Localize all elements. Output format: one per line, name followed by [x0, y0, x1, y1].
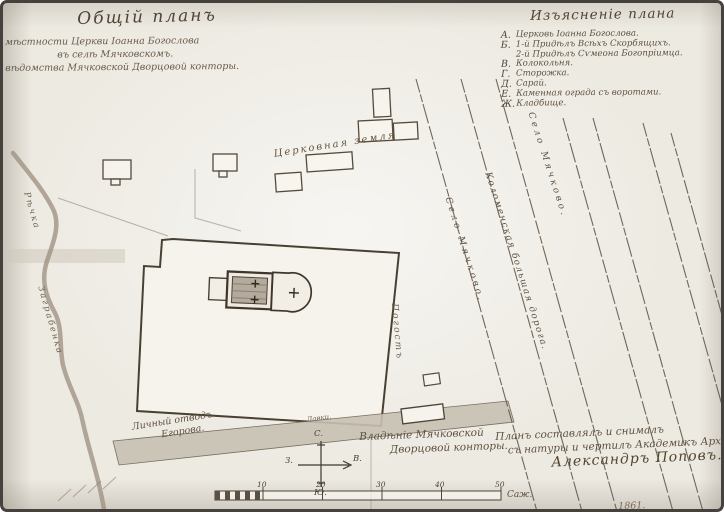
compass-west-label: З. [285, 456, 293, 466]
scale-number: 50 [495, 480, 505, 489]
compass-east-label: В. [353, 454, 362, 464]
building [103, 160, 131, 179]
scale-number: 30 [376, 480, 386, 489]
road-line [643, 123, 724, 423]
scale-number: 40 [435, 480, 445, 489]
subtitle-line-3: вѣдомства Мячковской Дворцовой конторы. [5, 60, 239, 75]
church-porch [209, 278, 228, 301]
attribution-date: 1861. [618, 500, 646, 512]
building [213, 154, 237, 171]
churchyard-outline [137, 239, 399, 426]
scale-number: 20 [316, 480, 326, 489]
legend-title: Изъясненіе плана [530, 5, 676, 24]
building [275, 172, 302, 192]
corner-hatching [58, 477, 116, 501]
building [219, 171, 227, 177]
legend-item: Ж.Кладбище. [501, 98, 683, 109]
ownership-label: Владѣніе Мячковской Дворцовой конторы. [359, 425, 508, 458]
compass-south-label: Ю. [314, 488, 327, 498]
page-title: Общій планъ [77, 5, 217, 29]
shed-building [423, 373, 440, 386]
legend-key: Ж. [501, 99, 516, 109]
scanned-plan: Общій планъ мѣстности Церкви Іоанна Бого… [0, 0, 724, 512]
building [372, 88, 390, 117]
building [111, 179, 120, 185]
scan-artifact-band [7, 249, 125, 263]
road-line [671, 133, 724, 333]
building [393, 122, 418, 140]
building [306, 152, 353, 172]
legend-list: А.Церковь Іоанна Богослова. Б.1-й Придѣл… [501, 29, 683, 109]
compass-north-label: С. [314, 429, 323, 439]
scale-number: 10 [257, 480, 267, 489]
legend-key: Б. [501, 40, 516, 50]
map-subtitle: мѣстности Церкви Іоанна Богослова въ сел… [5, 34, 239, 75]
legend-label: Кладбище. [516, 99, 566, 109]
scale-unit-label: Саж. [507, 490, 532, 500]
boundary-lines [58, 169, 241, 236]
